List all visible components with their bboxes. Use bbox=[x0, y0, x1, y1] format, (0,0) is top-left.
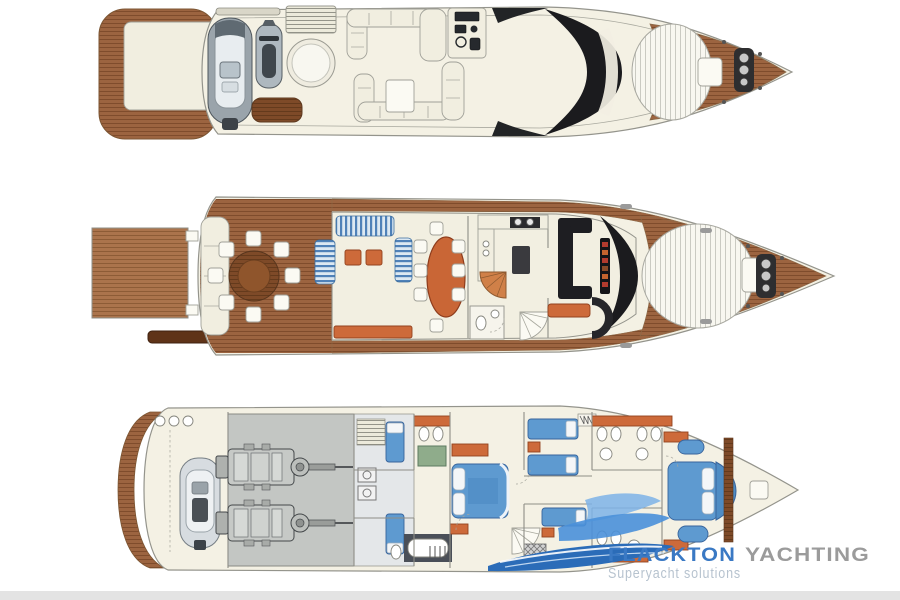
swim-platform bbox=[92, 228, 188, 318]
ottoman bbox=[345, 250, 361, 265]
day-head bbox=[470, 306, 504, 339]
spa-pool bbox=[287, 39, 335, 87]
teak-sun-lounger bbox=[252, 98, 302, 122]
grill-louver bbox=[286, 6, 336, 33]
main-deck-plan bbox=[92, 197, 834, 355]
galley-island bbox=[512, 246, 530, 274]
vip-seat bbox=[678, 526, 708, 542]
flybridge-helm-console bbox=[448, 8, 486, 58]
collision-bulkhead bbox=[724, 438, 733, 542]
crew-cabin-fwd bbox=[386, 422, 404, 462]
shower bbox=[418, 446, 446, 466]
cocktail-table bbox=[386, 80, 414, 112]
cleat bbox=[700, 228, 712, 233]
brand-name-secondary: YACHTING bbox=[745, 545, 870, 566]
master-wardrobe bbox=[452, 444, 488, 456]
cleat bbox=[700, 319, 712, 324]
sun-deck-plan bbox=[99, 6, 792, 139]
maindeck-bow-sunpad bbox=[642, 224, 754, 328]
jet-ski bbox=[256, 20, 282, 88]
yacht-deck-plans-image: FLACKTON YACHTING Superyacht solutions bbox=[0, 0, 900, 600]
pilothouse-bench bbox=[548, 304, 590, 317]
brand-name-primary: FLACKTON bbox=[608, 545, 736, 566]
cleat bbox=[620, 204, 632, 209]
aft-deck-dining-table bbox=[208, 231, 300, 322]
salon-sideboard bbox=[334, 326, 412, 338]
cleat bbox=[620, 343, 632, 348]
salon-sofa-aft bbox=[315, 240, 335, 284]
boat-hook bbox=[216, 8, 280, 15]
brand-tagline: Superyacht solutions bbox=[608, 565, 741, 582]
ottoman bbox=[366, 250, 382, 265]
vip-seat bbox=[678, 440, 704, 454]
tender-boat bbox=[208, 18, 252, 130]
page-bottom-bar bbox=[0, 591, 900, 600]
salon-sofa-port bbox=[336, 216, 394, 236]
salon-chaise bbox=[395, 238, 412, 282]
engine-room bbox=[216, 414, 354, 566]
bow-hatch bbox=[750, 481, 768, 499]
